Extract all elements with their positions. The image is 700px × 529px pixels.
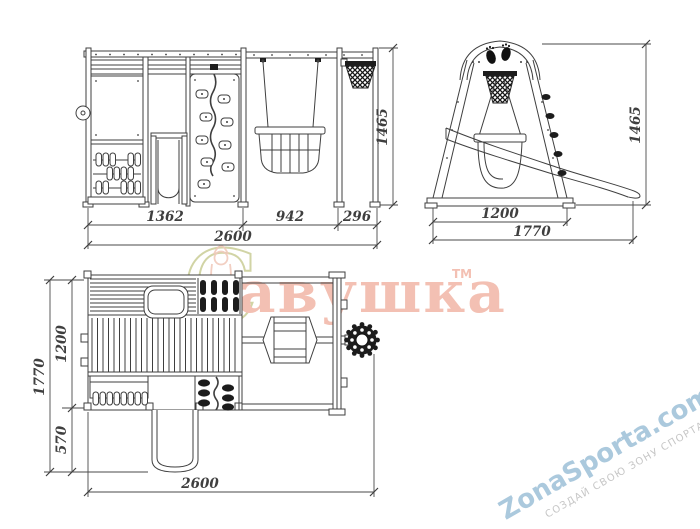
side-view: 1200 1770 1465 xyxy=(425,40,651,244)
dim-plan-slide: 570 xyxy=(54,425,70,454)
dim-side-frame: 1200 xyxy=(481,206,519,222)
basketball-hoop-front xyxy=(341,59,376,88)
brand-tm: ТМ xyxy=(452,267,472,281)
footprints-logo xyxy=(485,43,513,65)
plan-abacus xyxy=(90,376,148,405)
dim-front-left: 1362 xyxy=(146,209,184,225)
dim-front-height: 1465 xyxy=(375,108,391,146)
side-dimensions: 1200 1770 1465 xyxy=(429,40,651,244)
abacus xyxy=(88,144,145,204)
drawing-canvas: С авушка ТМ ZonaSporta.com СОЗДАЙ СВОЮ З… xyxy=(0,0,700,529)
dim-front-hoop: 296 xyxy=(342,209,372,225)
dim-plan-frame: 1200 xyxy=(54,325,70,363)
top-beam xyxy=(84,51,377,74)
dim-side-height: 1465 xyxy=(628,106,644,144)
panel xyxy=(91,76,143,140)
dim-plan-width: 2600 xyxy=(180,476,219,492)
dim-front-swing: 942 xyxy=(276,209,304,225)
plan-slide-tongue xyxy=(152,410,198,472)
front-view: 1362 942 296 2600 1465 xyxy=(76,44,398,249)
drawing-sheet: С авушка ТМ ZonaSporta.com СОЗДАЙ СВОЮ З… xyxy=(0,0,700,529)
basketball-hoop-side xyxy=(483,71,517,103)
dim-front-total: 2600 xyxy=(213,229,252,245)
plan-swing-seat xyxy=(263,317,317,363)
slide-front xyxy=(151,133,187,204)
plan-basketball-hoop xyxy=(341,322,380,358)
plan-slide-opening xyxy=(144,286,188,318)
swing-front xyxy=(255,58,325,173)
dim-plan-depth: 1770 xyxy=(32,358,48,396)
site-watermark: ZonaSporta.com СОЗДАЙ СВОЮ ЗОНУ СПОРТА xyxy=(494,380,700,529)
dim-side-total: 1770 xyxy=(513,224,551,240)
climbing-wall xyxy=(190,64,239,202)
wheel xyxy=(76,106,90,120)
site-name: ZonaSporta.com xyxy=(494,380,700,526)
